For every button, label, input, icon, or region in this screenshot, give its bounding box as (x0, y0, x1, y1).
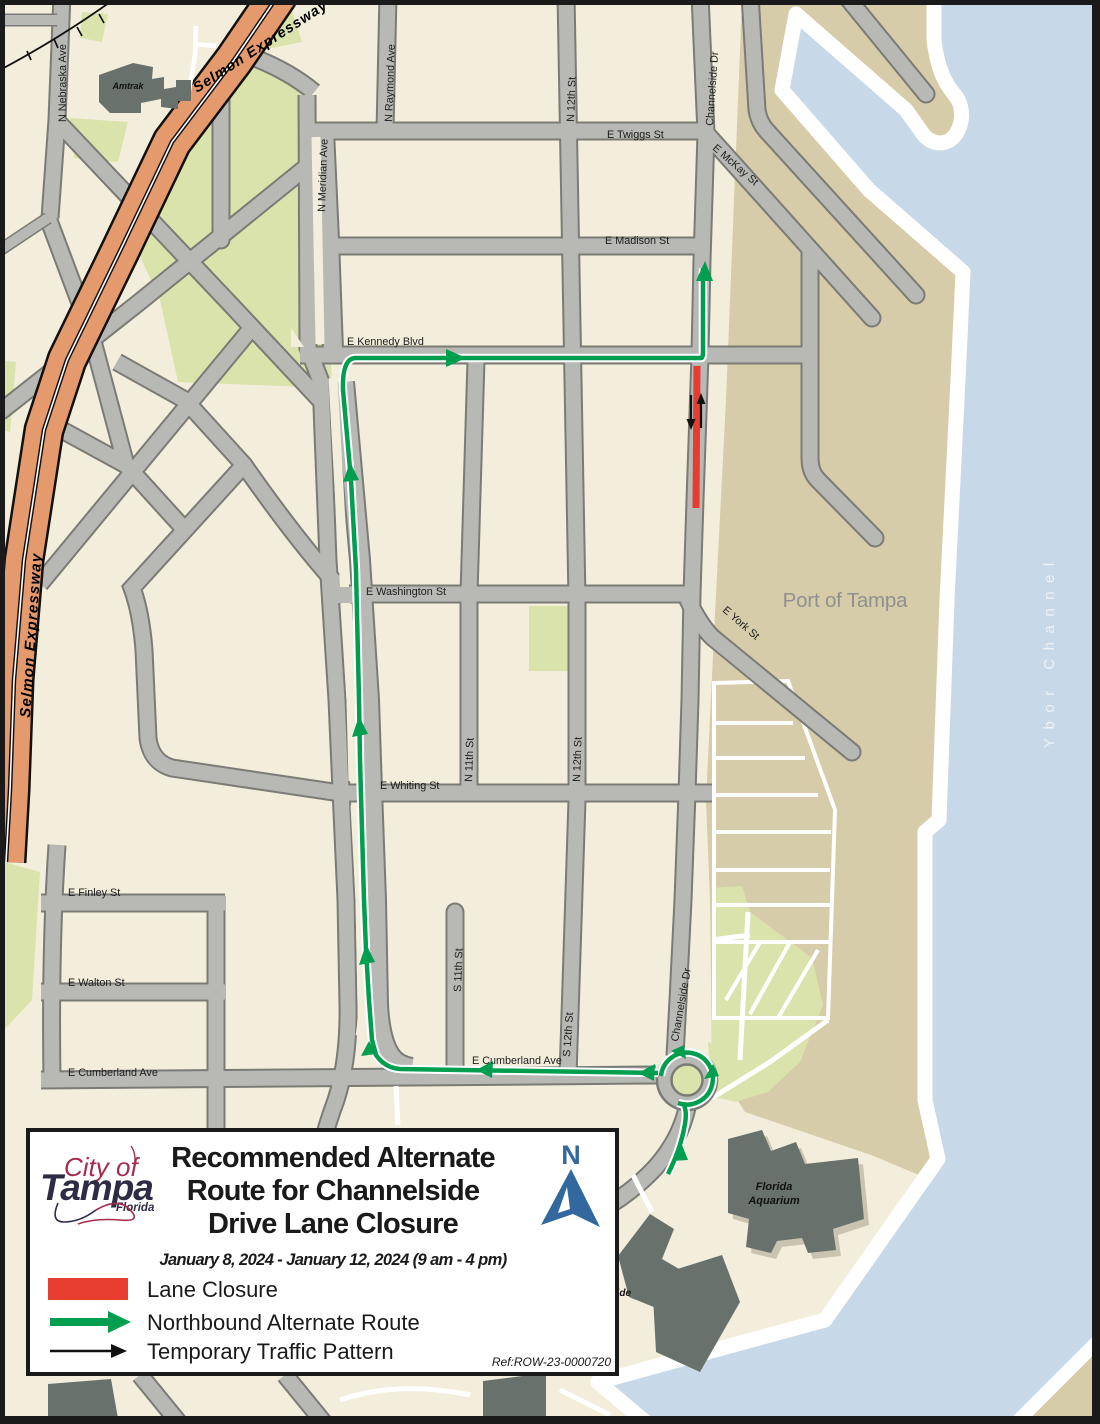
svg-text:E Cumberland Ave: E Cumberland Ave (68, 1067, 158, 1079)
svg-text:Lane Closure: Lane Closure (147, 1277, 278, 1302)
svg-text:N: N (561, 1140, 581, 1170)
svg-text:Northbound Alternate Route: Northbound Alternate Route (147, 1310, 420, 1335)
svg-text:Amtrak: Amtrak (111, 81, 144, 91)
svg-text:N Meridian Ave: N Meridian Ave (316, 139, 331, 212)
svg-text:E Washington St: E Washington St (366, 586, 446, 598)
svg-text:January 8, 2024 - January 12,: January 8, 2024 - January 12, 2024 (9 am… (159, 1251, 507, 1269)
svg-text:Florida: Florida (756, 1181, 793, 1193)
svg-text:Recommended Alternate: Recommended Alternate (171, 1142, 495, 1174)
svg-text:Aquarium: Aquarium (747, 1195, 800, 1207)
svg-text:N Nebraska Ave: N Nebraska Ave (57, 44, 69, 122)
svg-text:S 11th St: S 11th St (452, 948, 466, 992)
svg-text:Port of Tampa: Port of Tampa (783, 589, 908, 612)
svg-text:Temporary Traffic Pattern: Temporary Traffic Pattern (147, 1339, 394, 1364)
svg-text:Ybor Channel: Ybor Channel (1041, 554, 1058, 748)
svg-text:E Twiggs St: E Twiggs St (607, 129, 664, 141)
svg-text:N 12th St: N 12th St (565, 77, 579, 122)
svg-text:E Whiting St: E Whiting St (380, 780, 439, 792)
svg-text:N 11th St: N 11th St (463, 737, 477, 782)
svg-text:Ref:ROW-23-0000720: Ref:ROW-23-0000720 (492, 1355, 612, 1369)
svg-text:E Kennedy Blvd: E Kennedy Blvd (347, 336, 424, 348)
svg-text:Route for Channelside: Route for Channelside (187, 1175, 480, 1207)
svg-text:E Walton St: E Walton St (68, 977, 125, 989)
svg-text:N 12th St: N 12th St (571, 737, 585, 782)
svg-text:E Cumberland Ave: E Cumberland Ave (472, 1055, 562, 1067)
svg-text:E Madison St: E Madison St (605, 235, 669, 247)
svg-text:Drive Lane Closure: Drive Lane Closure (208, 1208, 459, 1240)
svg-text:E Finley St: E Finley St (68, 887, 120, 899)
